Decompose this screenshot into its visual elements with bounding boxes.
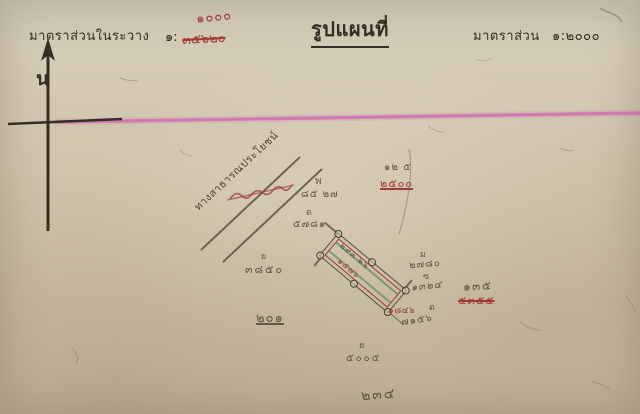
mark-ne-pencil-number: ๑๒ ๕ (384, 160, 412, 175)
cadastral-map-sheet: มาตราส่วนในระวาง ๑: ๓๕๖๒๐ ๑๐๐๐ รูปแผนที่… (0, 0, 640, 414)
scale-in-sheet-corrected-value: ๑๐๐๐ (195, 4, 233, 29)
scale-label: มาตราส่วน (473, 25, 540, 46)
mark-bottom-number-2: ๒๓๔ (360, 383, 397, 407)
paper-fiber (476, 58, 492, 61)
page-title: รูปแผนที่ (311, 13, 389, 48)
red-scribble-strike (227, 185, 294, 200)
mark-west-number: ๓๘๕๐ (245, 260, 284, 278)
paper-fiber (120, 78, 138, 81)
scale-value: ๑:๒๐๐๐ (552, 25, 600, 46)
mark-bottom-letter: ย (359, 338, 364, 352)
paper-fiber (600, 8, 622, 22)
paper-fiber (520, 322, 540, 330)
mark-nw-number: ๘๕ ๒๗ (301, 187, 339, 202)
paper-fiber (428, 126, 444, 132)
mark-nw-number-2: ๕๗๘๑ (293, 217, 326, 232)
north-letter: น (36, 64, 49, 94)
mark-south-number: ๒๐๑ (256, 307, 284, 328)
mark-far-east-red-number: ๕๓๕๕ (458, 291, 495, 309)
paper-fiber (72, 348, 77, 364)
map-linework (0, 0, 640, 414)
mark-bottom-number-1: ๕๐๐๕ (346, 351, 381, 366)
paper-fiber (560, 148, 574, 151)
paper-fiber (180, 150, 192, 156)
mark-ne-red-number: ๒๕๐๐ (380, 174, 413, 192)
scale-in-sheet-prefix: ๑: (165, 26, 178, 47)
scale-in-sheet-label: มาตราส่วนในระวาง (29, 25, 149, 46)
paper-fiber (626, 296, 636, 312)
paper-fiber (592, 382, 610, 390)
scale-in-sheet-struck-value: ๓๕๖๒๐ (181, 27, 226, 50)
